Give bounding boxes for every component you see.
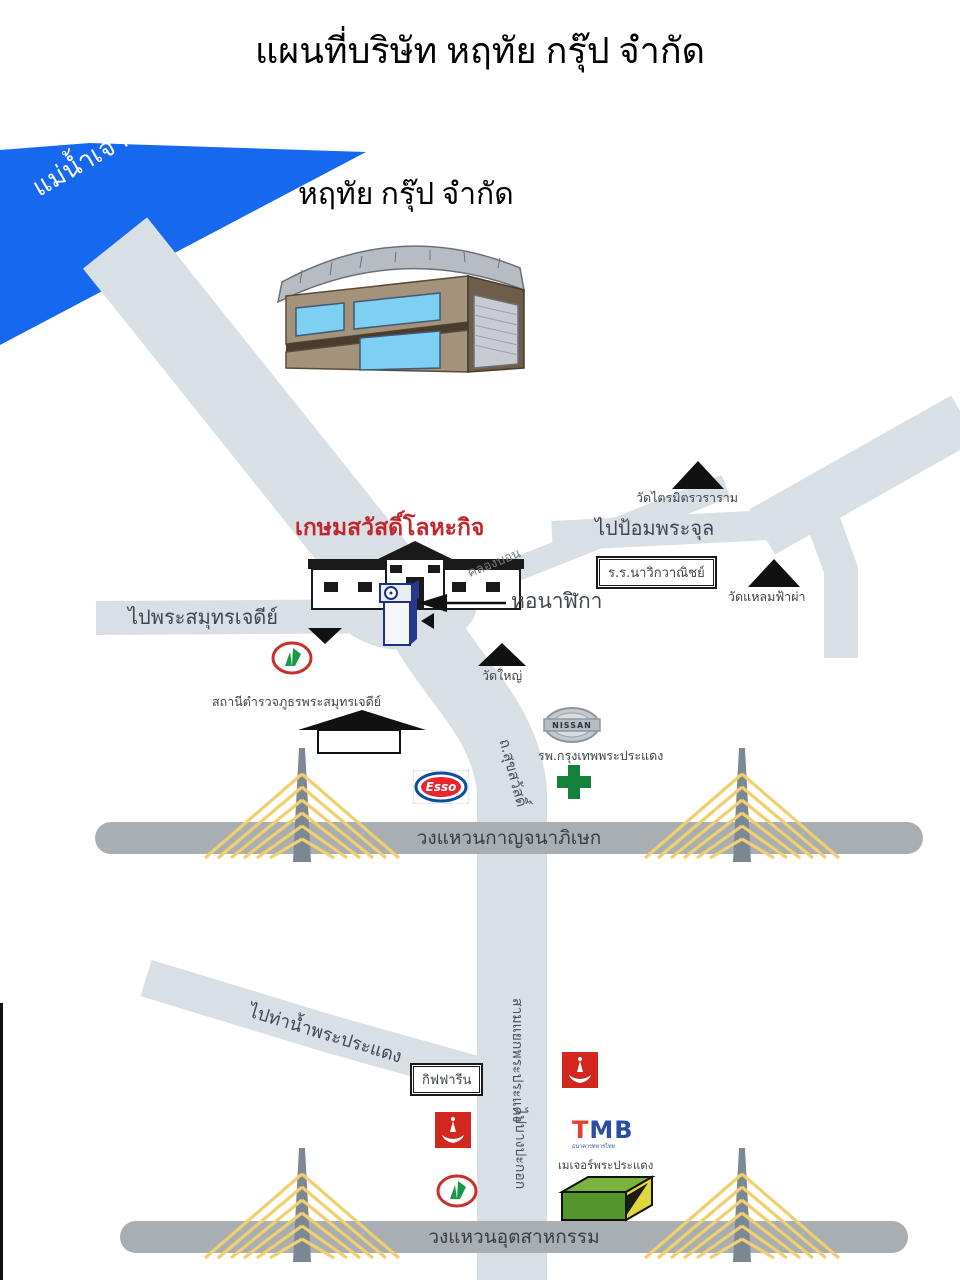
giffarine-box: กิฟฟารีน (410, 1063, 483, 1096)
roads (96, 243, 960, 1280)
giffarine-label: กิฟฟารีน (413, 1066, 480, 1093)
ring-industrial-label: วงแหวนอุตสาหกรรม (120, 1227, 908, 1248)
pai-bangpakok-label: ไปบางปะกอก (512, 1108, 527, 1189)
small-down-arrow-icon (308, 628, 342, 644)
nissan-logo-text: NISSAN (552, 721, 592, 730)
clock-tower-icon (380, 580, 419, 645)
school-label: ร.ร.นาวิกวาณิชย์ (599, 559, 714, 586)
samyaek-label: สามแยกพระประแดง (509, 998, 524, 1122)
wat-laem-label: วัดแหลมฟ้าผ่า (728, 590, 806, 604)
esso-logo-text: Esso (426, 780, 457, 794)
kasikorn-bank-logo-1 (273, 643, 311, 673)
school-box: ร.ร.นาวิกวาณิชย์ (596, 556, 717, 589)
pom-phrachul-label: ไปป้อมพระจุล (595, 517, 714, 539)
hospital-label: รพ.กรุงเทพพระประแดง (538, 749, 663, 763)
pai-phrasamut-label: ไปพระสมุทรเจดีย์ (128, 606, 278, 628)
hospital-cross-icon (557, 765, 591, 799)
wat-trimit-label: วัดไตรมิตรวราราม (636, 491, 738, 505)
red-bank-logo-1 (562, 1052, 598, 1088)
kasikorn-bank-logo-2 (438, 1176, 476, 1206)
major-label: เมเจอร์พระประแดง (558, 1159, 653, 1172)
map-canvas: แผนที่บริษัท หฤทัย กรุ๊ป จำกัด แม่น้ำเจ้… (0, 0, 960, 1280)
kasem-sawat-label: เกษมสวัสดิ์โลหะกิจ (295, 516, 484, 541)
wat-yai-label: วัดใหญ่ (482, 669, 522, 683)
company-building-illustration (278, 246, 524, 372)
esso-logo: Esso (413, 770, 469, 808)
road-right-branch (820, 512, 841, 658)
major-box-icon (562, 1177, 652, 1220)
nissan-logo: NISSAN (543, 706, 601, 748)
page-title: แผนที่บริษัท หฤทัย กรุ๊ป จำกัด (0, 32, 960, 72)
ring-kanchanaphisek-label: วงแหวนกาญจนาภิเษก (95, 828, 923, 849)
wat-yai-icon (478, 643, 526, 666)
tmb-bank-logo: TMB ธนาคารทหารไทย (572, 1118, 642, 1151)
road-top-right (762, 418, 960, 532)
tmb-logo-subtext: ธนาคารทหารไทย (572, 1143, 642, 1151)
wat-laem-icon (748, 559, 800, 587)
police-station-icon (298, 710, 426, 753)
red-bank-logo-2 (435, 1112, 471, 1148)
tmb-logo-text: TMB (572, 1118, 642, 1142)
company-name-label: หฤทัย กรุ๊ป จำกัด (298, 178, 514, 211)
page-edge-line (0, 1003, 3, 1280)
police-station-label: สถานีตำรวจภูธรพระสมุทรเจดีย์ (212, 695, 381, 709)
clock-tower-label: หอนาฬิกา (511, 590, 602, 613)
wat-trimit-icon (672, 461, 724, 489)
